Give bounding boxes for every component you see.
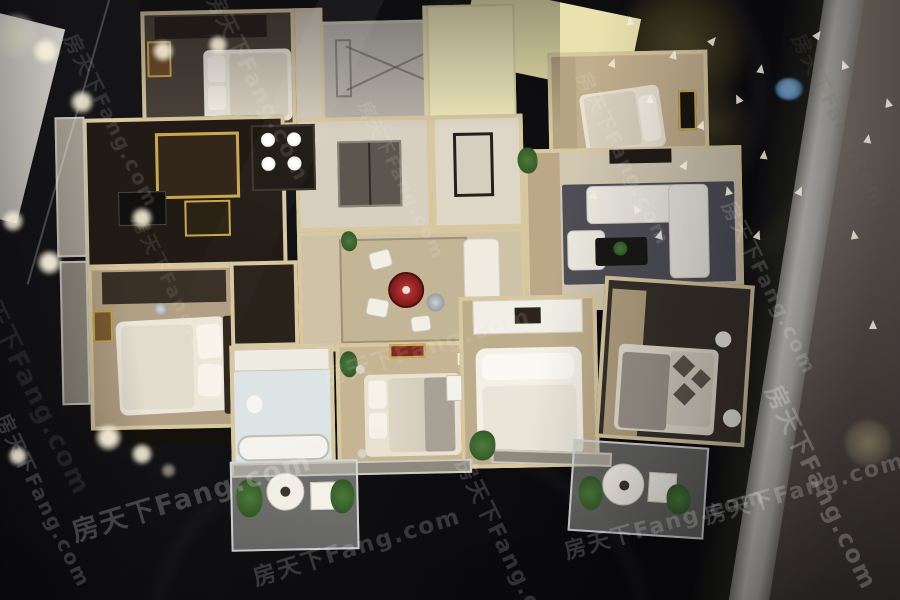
ceiling-light-bokeh xyxy=(2,210,24,232)
light-sparkle-triangle xyxy=(760,150,769,160)
ceiling-light-bokeh xyxy=(95,424,122,451)
ceiling-light-bokeh xyxy=(70,90,94,114)
ceiling-light-bokeh xyxy=(33,38,59,64)
light-sparkle-triangle xyxy=(883,97,893,108)
light-sparkle-triangle xyxy=(669,49,679,60)
ceiling-light-bokeh xyxy=(37,250,62,275)
ceiling-light-bokeh xyxy=(208,35,228,55)
ceiling-light-bokeh xyxy=(131,207,153,229)
light-sparkle-triangle xyxy=(707,34,719,46)
light-sparkle-triangle xyxy=(630,203,641,215)
light-sparkle-triangle xyxy=(812,29,824,41)
light-sparkle-triangle xyxy=(589,189,598,199)
light-sparkle-triangle xyxy=(697,119,708,130)
light-sparkle-triangle xyxy=(869,320,877,329)
ceiling-light-bokeh xyxy=(131,443,153,465)
ceiling-light-bokeh xyxy=(161,463,176,478)
light-sparkle-triangle xyxy=(679,159,690,171)
light-sparkle-triangle xyxy=(723,185,733,196)
light-sparkle-triangle xyxy=(608,57,619,68)
light-sparkle-triangle xyxy=(625,15,634,25)
ceiling-light-bokeh xyxy=(8,446,28,466)
bokeh-light-layer xyxy=(0,0,900,600)
light-sparkle-triangle xyxy=(732,93,743,105)
light-sparkle-triangle xyxy=(753,229,764,240)
light-sparkle-triangle xyxy=(756,63,765,73)
light-sparkle-triangle xyxy=(646,94,654,103)
light-sparkle-triangle xyxy=(863,133,872,143)
light-sparkle-triangle xyxy=(839,59,850,70)
ceiling-light-bokeh xyxy=(152,40,174,62)
light-sparkle-triangle xyxy=(655,229,665,240)
model-photo-canvas: 房天下Fang.com房天下Fang.com房天下Fang.com房天下Fang… xyxy=(0,0,900,600)
light-sparkle-triangle xyxy=(794,185,805,197)
light-sparkle-triangle xyxy=(849,229,858,239)
